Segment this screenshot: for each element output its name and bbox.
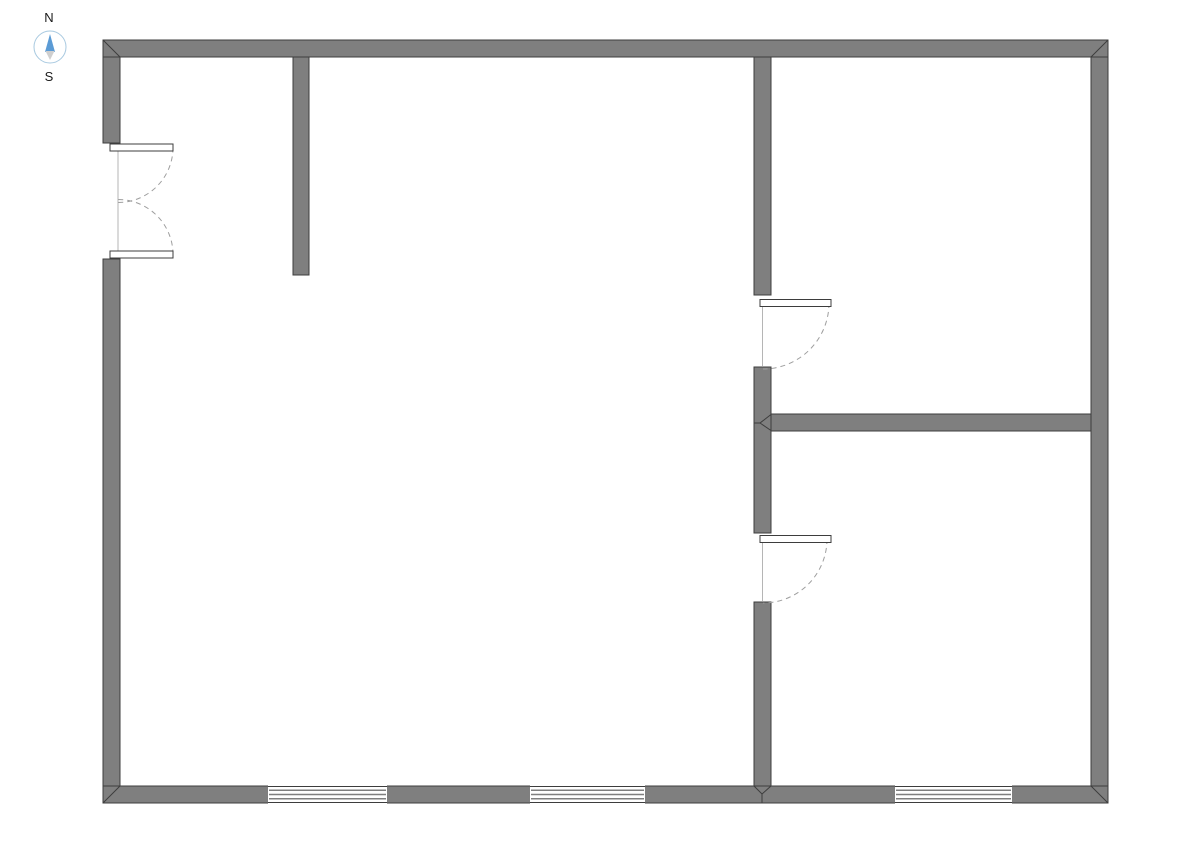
plan-layer [103,40,1108,804]
entry-double-door-top-leaf [110,144,173,151]
entry-double-door-top-swing-arc [118,148,173,203]
entry-double-door-bottom-swing-arc [118,200,173,255]
exterior-wall-top [103,40,1108,57]
interior-wall-right-middle [754,367,771,533]
door-room-lower-right-leaf [760,536,831,543]
compass-south-label: S [45,69,54,84]
exterior-wall-left-lower [103,259,120,786]
floorplan-canvas: N S [0,0,1191,842]
interior-wall-stub [293,57,309,275]
door-room-lower-right-swing-arc [763,539,827,603]
door-room-upper-right-leaf [760,300,831,307]
interior-wall-right-upper [754,57,771,295]
interior-wall-horizontal [771,414,1091,431]
entry-double-door-bottom-leaf [110,251,173,258]
compass-north-label: N [44,10,53,25]
compass: N S [34,10,66,84]
exterior-wall-right [1091,57,1108,786]
interior-wall-right-lower [754,602,771,786]
door-room-upper-right-swing-arc [763,303,829,369]
floorplan-page: N S [0,0,1191,842]
exterior-wall-left-upper [103,57,120,143]
